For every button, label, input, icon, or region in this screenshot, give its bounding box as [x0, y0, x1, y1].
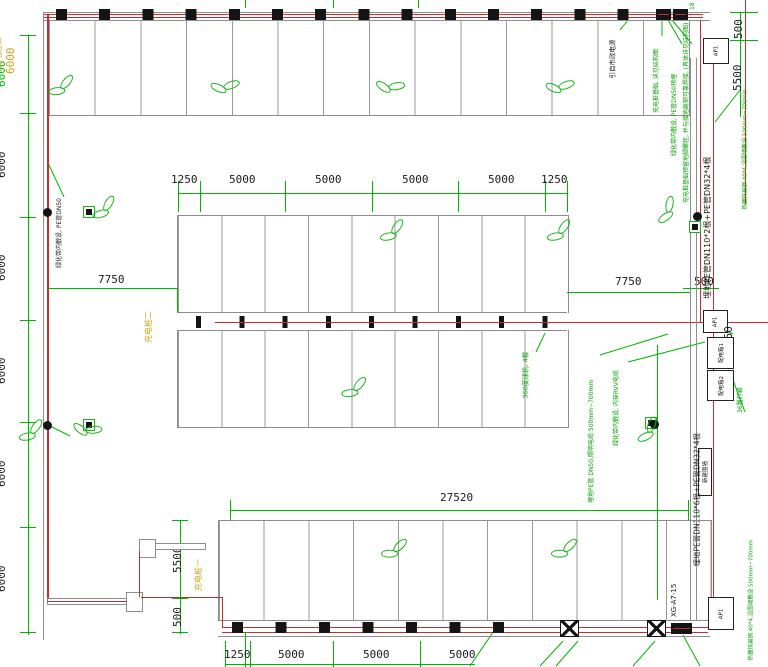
bottom-dim-tick [333, 641, 334, 667]
gate-bar-2 [154, 543, 206, 550]
dim-left-6: 6000 [0, 566, 8, 593]
dim-27520: 27520 [440, 492, 473, 504]
pull-box-symbol [647, 620, 666, 637]
dim-left-5: 6000 [0, 461, 8, 488]
bottom-charging-pile-row [232, 622, 525, 633]
bl-dim-tick [172, 520, 188, 521]
distribution-box-1: 配电箱1 [707, 337, 734, 369]
rvv-cable-note: 绿化带内敷设, 内穿RVV电缆 [614, 370, 620, 446]
dim-mid-5: 5000 [488, 174, 515, 186]
tr-dim-tick [730, 12, 758, 13]
mid-corridor-top [177, 312, 567, 313]
gate-post-1 [126, 592, 143, 612]
power-source-note: 引自市政电源 [610, 40, 617, 79]
dim-left-2: 6000 [0, 152, 8, 179]
green-belt-pipe-note: 绿化带内敷设, PE管DN50预埋 [672, 74, 678, 156]
top-charging-pile-row [56, 9, 656, 20]
right-cable-riser-1 [700, 20, 701, 322]
dim-7750-left-line [48, 288, 177, 289]
junction-plate-2 [673, 9, 688, 20]
left-dim-tick [20, 320, 36, 321]
mid-connector [177, 288, 178, 312]
dim-tick [230, 500, 231, 520]
ground-steel-note: 充电桩基础预留地脚螺栓, 并与接地扁钢可靠焊接, (具体详见结构图) [684, 23, 690, 203]
left-dim-tick [20, 113, 36, 114]
gate-post-2 [139, 539, 156, 558]
camera-note: 360度球机, 4根 [523, 352, 530, 399]
top-right-power-box: AP1 [703, 38, 729, 64]
pile-foundation-note: 充电桩基础, 详见结构图 [654, 49, 660, 113]
street-lamp-icon [689, 221, 701, 233]
dim-7750-right: 7750 [615, 276, 642, 288]
flat-steel-bottom-note: 热镀锌扁钢 40*4,沿围墙敷设 500mm~700mm [750, 540, 756, 661]
dim-bottom-4: 5000 [449, 649, 476, 661]
route-v2 [222, 597, 223, 628]
mid-lower-stalls [177, 330, 569, 428]
corner-18-note: 18 [690, 2, 696, 10]
top-stub-2 [333, 0, 334, 8]
junction-plate-1 [656, 9, 671, 20]
dim-mid-3: 5000 [315, 174, 342, 186]
bottom-dim-tick [420, 641, 421, 667]
station-one-label: 充电桩一 [195, 559, 203, 591]
bl-dim-tick [172, 632, 188, 633]
dim-mid-2: 5000 [229, 174, 256, 186]
dim-left-3: 6000 [0, 255, 8, 282]
dim-tr-5500: 5500 [732, 65, 744, 92]
dim-left-yellow: 6000 [5, 48, 17, 75]
bottom-dim-line [225, 664, 475, 665]
mid-upper-stalls [177, 215, 569, 313]
dim-bottom-3: 5000 [363, 649, 390, 661]
mid-dim-tick [458, 181, 459, 212]
handhole-dot [43, 208, 52, 217]
bl-dim-tick [172, 598, 188, 599]
lamp-box-note: 36路灯箱 [738, 387, 744, 413]
dim-7750-right-line [567, 292, 690, 293]
dim-mid-1: 1250 [171, 174, 198, 186]
dim-mid-4: 5000 [402, 174, 429, 186]
left-dim-tick [20, 35, 36, 36]
dim-bottom-1: 1250 [224, 649, 251, 661]
mid-cable-line [215, 322, 768, 323]
top-stub-3 [418, 0, 419, 8]
left-wall-line [43, 12, 44, 640]
cad-site-plan: 6000 6000 6000 6000 6000 6000 6000 充电桩三 … [0, 0, 768, 667]
dim-bl-5500: 5500 [172, 547, 184, 574]
dim-tr-500: 500 [733, 19, 745, 39]
route-h1 [47, 601, 127, 602]
dim-7750-left: 7750 [98, 274, 125, 286]
left-dim-tick [20, 632, 36, 633]
tr-dim-tick [730, 40, 758, 41]
distribution-box-2: 配电箱2 [707, 370, 734, 401]
left-green-belt-note: 绿化带内敷设, PE管DN50 [57, 198, 63, 268]
left-dim-line [28, 35, 29, 635]
dim-mid-6: 1250 [541, 174, 568, 186]
route-h2 [141, 597, 222, 598]
mid-dim-tick [200, 181, 201, 212]
mid-dim-tick [285, 181, 286, 212]
left-dim-tick [20, 217, 36, 218]
bottom-band-top [218, 620, 710, 621]
flat-steel-top-note: 热镀锌扁钢 40*4,沿围墙敷设 500mm~700mm [744, 89, 750, 210]
bottom-right-power-box: AP1 [708, 597, 734, 630]
bottom-band-bottom [218, 636, 710, 637]
station-two-label: 充电桩二 [145, 311, 153, 343]
left-dim-tick [20, 527, 36, 528]
pipe-dn110x2-note: 埋地PE管DN110*2根+PE管DN32*4根 [704, 157, 712, 299]
dim-left-4: 6000 [0, 358, 8, 385]
dim-tick [688, 500, 689, 520]
dim-bl-500: 500 [172, 607, 184, 627]
left-cable-riser [47, 15, 49, 601]
dim-bottom-2: 5000 [278, 649, 305, 661]
lighting-pipe-note: 埋地PE管 DN50,照明电缆 500mm~700mm [589, 380, 595, 503]
junction-plate-3 [671, 623, 692, 634]
station-three-label: 充电桩三 [0, 37, 3, 69]
route-v1 [139, 551, 140, 597]
pull-box-symbol [560, 620, 579, 637]
bottom-parking-stalls [218, 520, 712, 621]
top-stub-1 [245, 0, 246, 8]
handhole-dot [693, 212, 702, 221]
top-parking-stalls [48, 20, 690, 116]
dim-27520-line [230, 510, 688, 511]
plant-icon [210, 80, 240, 94]
plant-icon [545, 80, 575, 94]
mid-dim-tick [372, 181, 373, 212]
